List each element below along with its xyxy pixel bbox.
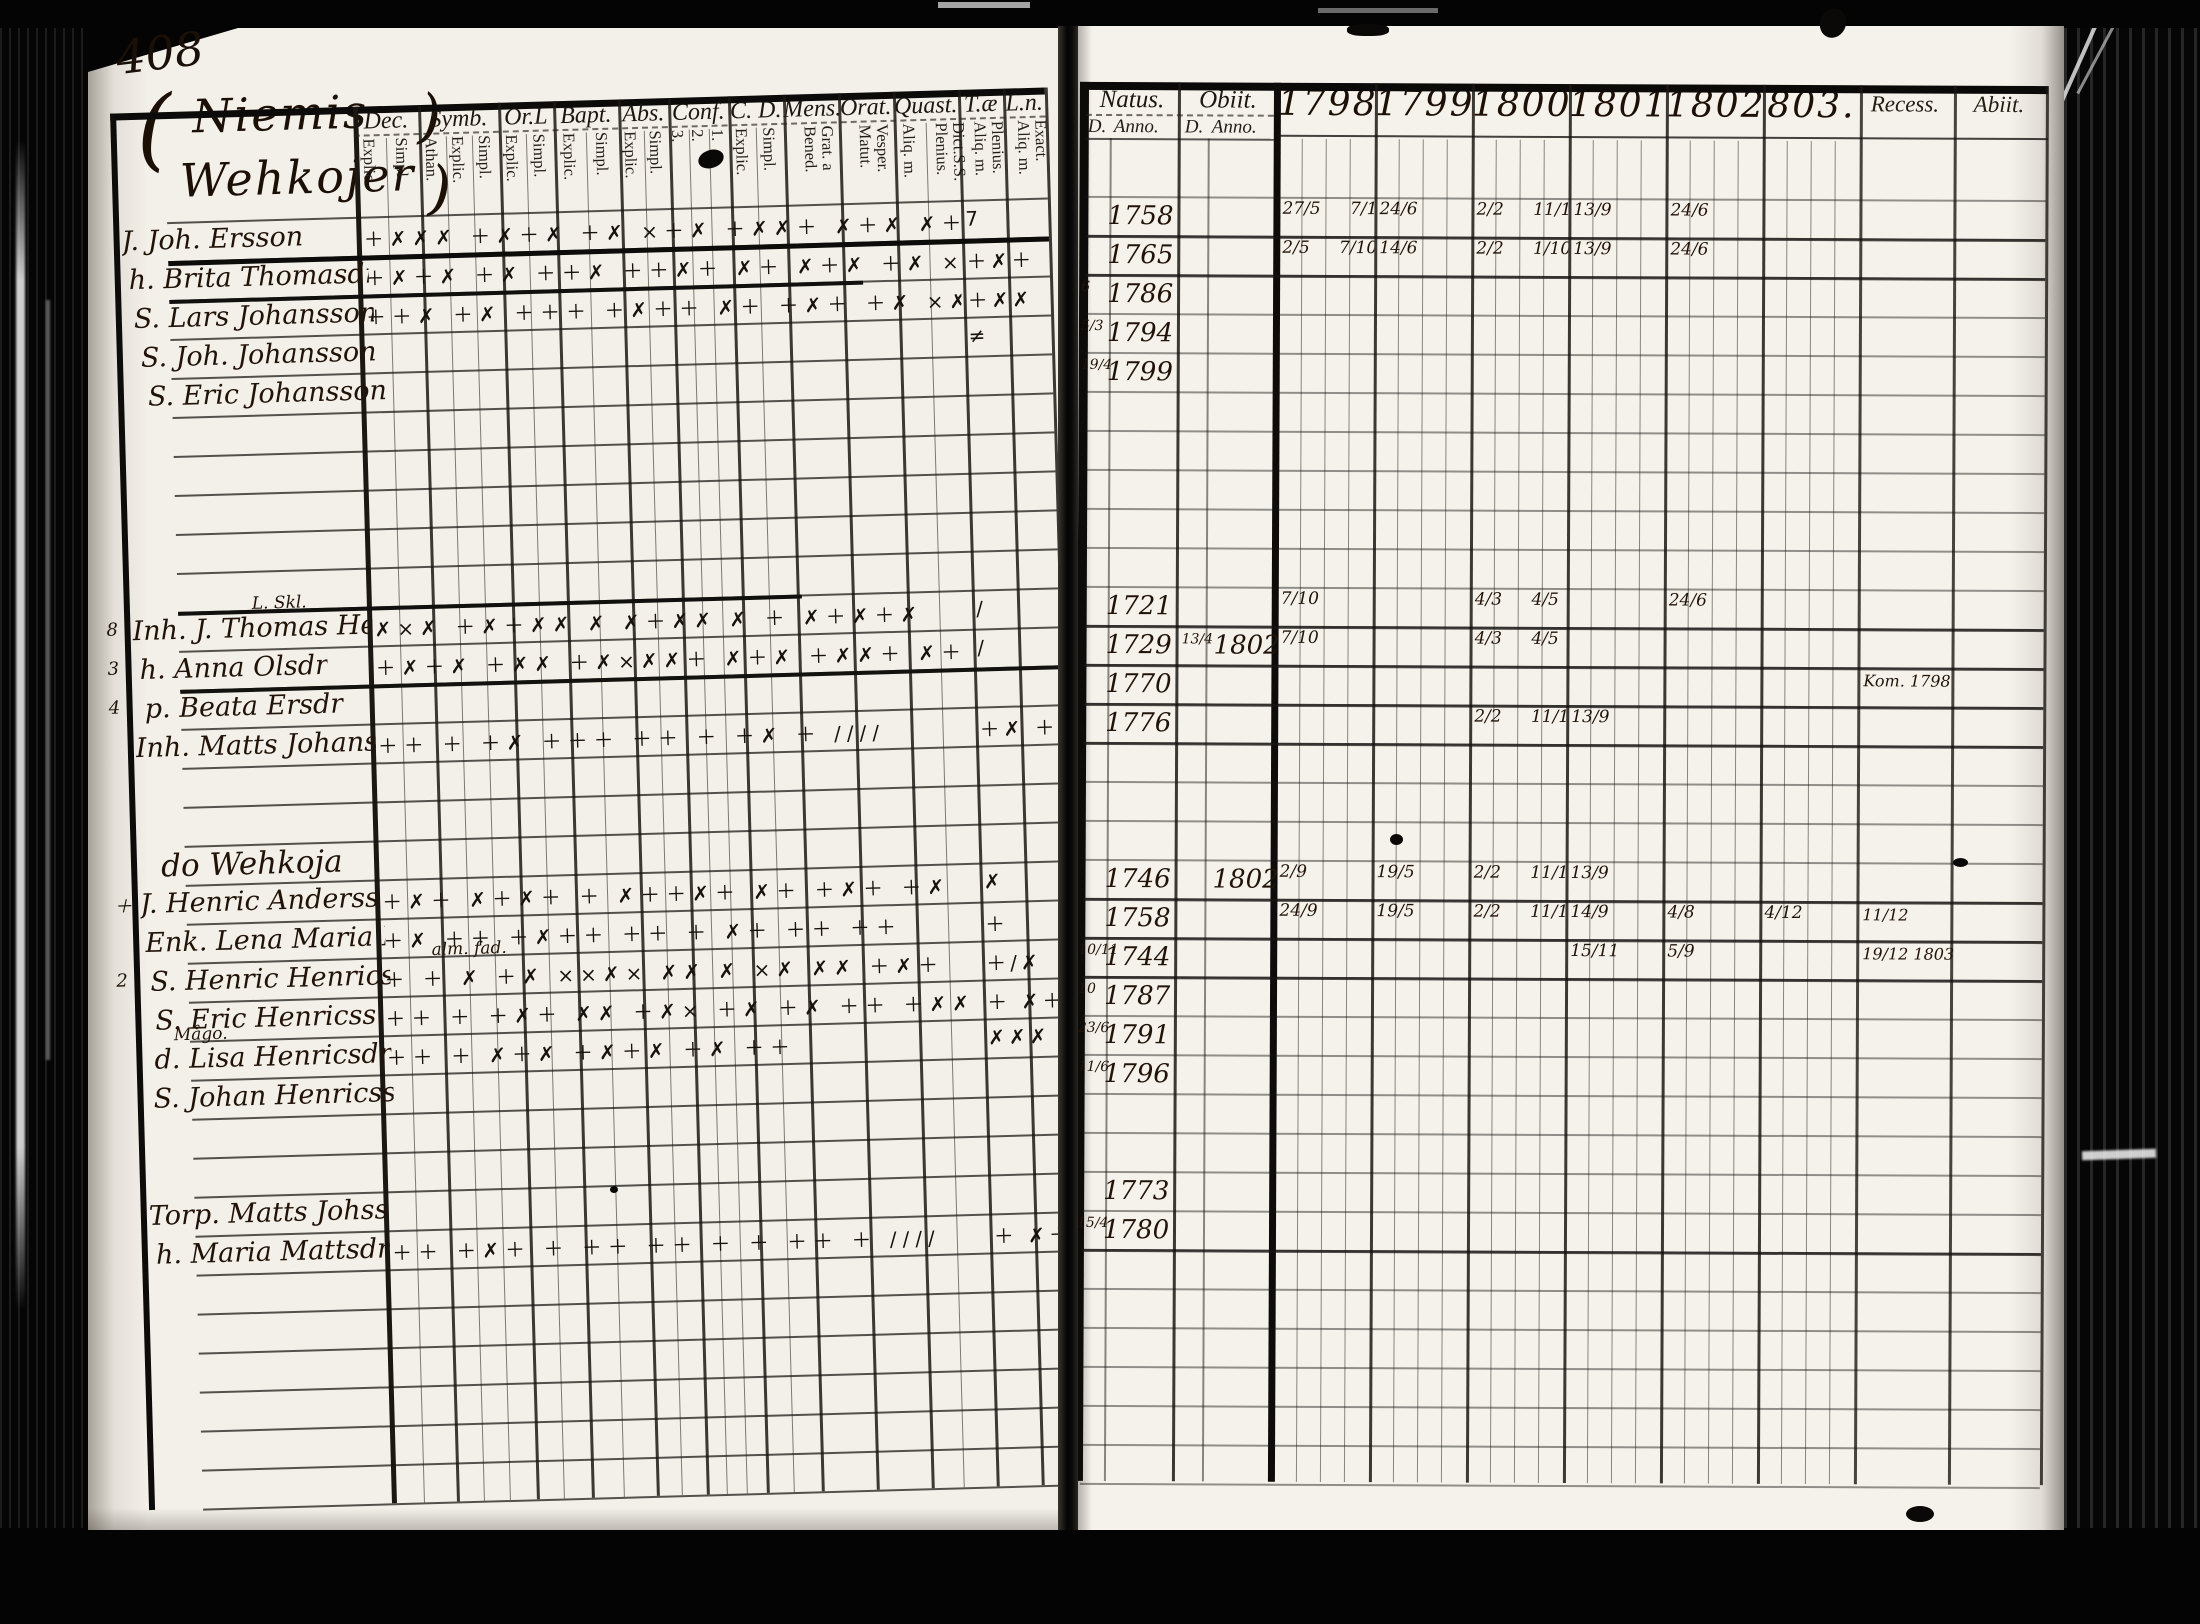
entry-tail-marks: ≠ [968,321,1051,347]
row-line-heavy [1083,742,2043,749]
communion-date-value: 14/9 [1570,902,1662,922]
natus-year-value: 1786 [1107,279,1177,309]
natus-year-value: 1796 [1104,1059,1174,1089]
natus-year-value: 1746 [1104,864,1174,894]
entry-tail-marks: ＋∕✗ [986,945,1062,976]
entry-annotation: L. Skl. [252,592,307,614]
row-line [1082,1054,2042,1060]
natus-anno-label: Anno. [1114,116,1159,138]
subcolumn-border [1441,139,1448,1482]
subheader-tae-0: Plenius. Aliq. m. [971,121,1008,198]
row-line [1083,781,2043,787]
natus-year-value: 1721 [1106,591,1176,621]
column-header-symb: Symb. [418,105,499,134]
row-line [1080,1405,2040,1411]
natus-day-value: 6 [1081,280,1109,294]
natus-day-value: 10/11 [1078,943,1106,957]
obiit-d-label: D. [1185,116,1204,138]
entry-name: S. Lars Johansson [133,297,374,335]
entry-name: Enk. Lena Maria Michelsdr [145,921,386,959]
communion-date-value: 2/5 7/10 [1282,238,1374,258]
margin-note: 8 [106,620,118,641]
entry-name: S. Joh. Johansson [140,336,376,374]
row-line [201,1406,1062,1433]
subheader-symb-1: Explic. [449,136,468,212]
entry-name: Inh. Matts Johansson [135,726,376,764]
entry-tail-marks: ＋✗ ＋ [979,711,1062,742]
communion-date-value: 2/9 [1280,862,1372,882]
microfilm-scan: ( Niemis ) Wehkojer ) Dec.Explic.Simpl.S… [0,0,2200,1624]
year-underline [1278,135,2048,141]
subcolumn-border [1587,140,1594,1483]
subcolumn-border [1344,139,1351,1482]
gutter-shadow [1058,26,1078,1530]
subheader-dec-0: Explic. [360,138,379,214]
row-line [1081,1171,2041,1177]
row-line [1085,352,2045,358]
communion-date-value: 2/2 1/10 [1476,239,1568,259]
film-edge-left [0,0,88,1624]
row-line [1081,1288,2041,1294]
film-edge-bottom [0,1528,2200,1624]
entry-tail-marks: ＋ [985,906,1062,937]
row-line-heavy [1081,1249,2041,1256]
film-edge-top [0,0,2200,28]
row-line [199,1328,1062,1355]
subcolumn-border [644,131,684,1496]
communion-date-value: 13/9 [1573,200,1665,220]
subheader-cd-0: Explic. [732,128,751,204]
end-note: 19/12 1803 [1862,944,2040,964]
subheader-dec-1: Simpl. [393,137,412,213]
row-line [1082,1015,2042,1021]
column-header-orl: Or.L [498,103,554,132]
entry-tail-marks: 7 [965,205,1048,231]
subheader-quast-1: Dict.S.S. Plenius. [932,122,969,199]
subheader-mens-0: Grat. a Bened. [801,125,838,202]
ink-blot [1906,1506,1934,1522]
row-line [1081,1327,2041,1333]
ink-blot [1390,834,1403,845]
subcolumn-border [1829,141,1836,1484]
row-line [1080,1366,2040,1372]
communion-date-value: 4/3 4/5 [1475,590,1567,610]
header-rule [1086,138,1274,141]
natus-day-value: 10 [1078,982,1106,996]
communion-date-value: 27/5 7/10 [1282,199,1374,219]
natus-year-value: 1776 [1105,708,1175,738]
communion-date-value: 4/3 4/5 [1475,629,1567,649]
subcolumn-border [1538,140,1545,1483]
row-line [1084,508,2044,514]
subcolumn-border [1490,140,1497,1483]
row-line [174,431,1055,458]
communion-date-value: 24/6 [1669,590,1761,610]
heading-brace: ( [135,76,173,182]
row-line [1084,430,2044,436]
subheader-bapt-0: Explic. [560,133,579,209]
communion-date-value: 24/6 [1670,239,1762,259]
subheader-orl-1: Simpl. [530,133,549,209]
row-line [203,1484,1062,1511]
communion-date-value: 4/12 [1764,903,1856,923]
page-number: 408 [113,21,207,85]
communion-date-value: 13/9 [1571,863,1663,883]
column-header-cd: C. D. [728,97,784,126]
natus-year-value: 1787 [1104,981,1174,1011]
natus-year-value: 1773 [1103,1176,1173,1206]
film-scratch [16,140,25,1310]
subcolumn-border [1781,141,1788,1484]
column-header-bapt: Bapt. [553,101,619,130]
communion-date-value: 13/9 [1573,239,1665,259]
margin-note: 4 [108,698,120,719]
communion-date-value: 15/11 [1570,941,1662,961]
left-page: ( Niemis ) Wehkojer ) Dec.Explic.Simpl.S… [88,28,1062,1530]
subcolumn-border [689,129,729,1494]
natus-year-value: 1770 [1105,669,1175,699]
communion-date-value: 2/2 11/10 [1474,863,1566,883]
natus-day-value: 23/6 [1078,1021,1106,1035]
subcolumn-border [709,129,749,1494]
row-line [193,1133,1062,1160]
entry-tail-marks: ∕ [977,633,1060,659]
column-header-mens: Mens. [783,95,839,124]
film-scratch [46,300,50,1060]
place-heading-line-2: Wehkojer [179,147,416,208]
row-line [177,548,1058,575]
entry-tail-marks: ✗ [984,867,1062,893]
entry-tail-marks: ＋ ✗＋ [993,1218,1062,1249]
natus-year-value: 1791 [1104,1020,1174,1050]
communion-date-value: 7/10 [1281,589,1373,609]
subheader-conf-0: 3. [669,130,688,206]
subheader-orl-0: Explic. [503,134,522,210]
row-line [1085,313,2045,319]
entry-name: h. Brita Thomasdr [128,258,369,296]
entry-name: p. Beata Ersdr [144,688,343,725]
subcolumn-border [1514,140,1521,1483]
row-line [1085,391,2045,397]
column-header-orat: Orat. [838,94,894,123]
subcolumn-border [1805,141,1812,1484]
subcolumn-border [1684,141,1691,1484]
row-line [1080,1483,2040,1489]
entry-name: S. Johan Henricss. [153,1077,394,1115]
entry-tail-marks: ✗✗✗ [988,1023,1062,1049]
margin-note: 3 [107,659,119,680]
communion-date-value: 2/2 11/10 [1476,200,1568,220]
margin-note: ＋ [114,892,133,918]
right-page: Natus. Obiit. D. Anno. D. Anno. 1798 179… [1078,26,2064,1530]
communion-date-value: 13/9 [1571,707,1663,727]
film-edge-right [2064,0,2200,1624]
ink-blot [610,1186,618,1193]
subcolumn-border [1708,141,1715,1484]
natus-year-value: 1765 [1107,240,1177,270]
subheader-symb-2: Simpl. [475,135,494,211]
natus-year-value: 1729 [1105,630,1175,660]
row-line-heavy [1085,274,2045,281]
subcolumn-border [1635,140,1642,1483]
column-header-ln: L.n. [1003,90,1046,118]
natus-year-value: 1758 [1107,201,1177,231]
entry-tail-marks: ∕ [976,594,1059,620]
subheader-orat-0: Vesper. Matut. [856,124,893,201]
entry-tail-marks: ＋ ✗＋ [987,984,1062,1015]
obiit-day-value: 13/4 [1182,631,1212,647]
subcolumn-border [1417,139,1424,1482]
communion-date-value: 7/10 [1281,628,1373,648]
row-line [1084,547,2044,553]
communion-date-value: 2/2 11/10 [1473,902,1565,922]
entry-name: S. Henric Henricss. [150,960,391,998]
communion-date-value: 2/2 11/10 [1474,707,1566,727]
subheader-cd-1: Simpl. [760,127,779,203]
communion-date-value: 5/9 [1667,941,1759,961]
natus-year-value: 1794 [1107,318,1177,348]
communion-date-value: 24/6 [1670,200,1762,220]
subheader-abs-1: Simpl. [646,130,665,206]
row-line [1081,1132,2041,1138]
row-line-heavy [1082,976,2042,983]
entry-name: Torp. Matts Johss. [148,1194,389,1232]
entry-tail-marks: ＋✗＋ [966,243,1049,274]
film-scratch [938,2,1030,8]
natus-year-value: 1799 [1107,357,1177,387]
ink-blot [1953,858,1968,867]
communion-date-value: 24/6 [1379,199,1471,219]
communion-date-value: 19/5 [1377,862,1469,882]
row-line [176,509,1057,536]
entry-name: h. Maria Mattsdr [156,1233,391,1271]
subcolumn-border [926,123,966,1488]
subcolumn-border [1320,139,1327,1482]
left-ledger-grid: ( Niemis ) Wehkojer ) Dec.Explic.Simpl.S… [88,28,1062,1530]
place-row-label: do Wehkoja [161,843,343,884]
row-line [1080,1444,2040,1450]
subheader-ln-0: Exact. Aliq. m. [1015,119,1052,196]
subheader-symb-0: Athan. [422,136,441,212]
natus-day-value: 15/4 [1078,1216,1105,1230]
row-line [1084,469,2044,475]
subcolumn-border [1296,139,1303,1482]
communion-date-value: 4/8 [1667,902,1759,922]
natus-d-label: D. [1088,116,1107,138]
right-ledger-grid: Natus. Obiit. D. Anno. D. Anno. 1798 179… [1078,26,2064,1530]
communion-date-value: 14/6 [1379,238,1471,258]
row-line [1082,1093,2042,1099]
natus-year-value: 1744 [1104,942,1174,972]
entry-name: S. Eric Johansson [148,375,388,413]
natus-year-value: 1780 [1103,1215,1173,1245]
obiit-year-value: 1802 [1212,864,1272,894]
natus-year-value: 1758 [1104,903,1174,933]
subcolumn-border [1611,140,1618,1483]
subcolumn-border [1732,141,1739,1484]
entry-tail-marks: ＋✗✗ [967,282,1050,313]
row-line [183,782,1062,809]
subheader-bapt-1: Simpl. [593,132,612,208]
ink-blot [1347,24,1389,36]
row-line-heavy [1083,664,2043,671]
column-header-dec: Dec. [353,107,419,136]
film-scratch [1318,8,1438,13]
subcolumn-border [386,138,426,1503]
entry-name: J. Joh. Ersson [121,221,303,257]
recess-column-header: Recess. [1858,91,1952,117]
communion-date-value: 19/5 [1376,901,1468,921]
row-line [200,1367,1062,1394]
obiit-anno-label: Anno. [1212,116,1257,138]
column-header-quast: Quast. [893,92,959,121]
subcolumn-border [1202,138,1209,1481]
communion-date-value: 24/9 [1279,901,1371,921]
entry-name: J. Henric Anderss. [140,882,381,920]
subcolumn-border [1393,139,1400,1482]
end-note: 11/12 [1862,905,2040,925]
row-line [198,1289,1062,1316]
row-line-heavy [1082,937,2042,944]
column-header-abs: Abs. [618,100,669,128]
entry-name: Inh. J. Thomas Henricss. [132,610,373,648]
obiit-year-value: 1802 [1213,630,1273,660]
subheader-quast-0: Aliq. m. [900,123,919,199]
row-line [175,470,1056,497]
natus-day-value: 19/4 [1081,358,1109,372]
entry-name: h. Anna Olsdr [139,650,328,686]
abiit-column-header: Abiit. [1952,92,2046,118]
row-line [1083,820,2043,826]
subheader-abs-0: Explic. [621,131,640,207]
natus-day-value: 5/3 [1081,319,1109,333]
margin-note: 2 [116,970,128,991]
column-header-conf: Conf. [668,98,729,127]
column-header-tae: T.æ [958,91,1004,119]
end-note: Kom. 1798 [1863,671,2041,691]
row-line [194,1172,1062,1199]
entry-annotation: alm. fad. [431,938,507,960]
row-line [1081,1210,2041,1216]
entry-annotation: Mågo. [174,1024,228,1045]
subcolumn-border [586,132,626,1497]
natus-day-value: 11/6 [1078,1060,1106,1074]
